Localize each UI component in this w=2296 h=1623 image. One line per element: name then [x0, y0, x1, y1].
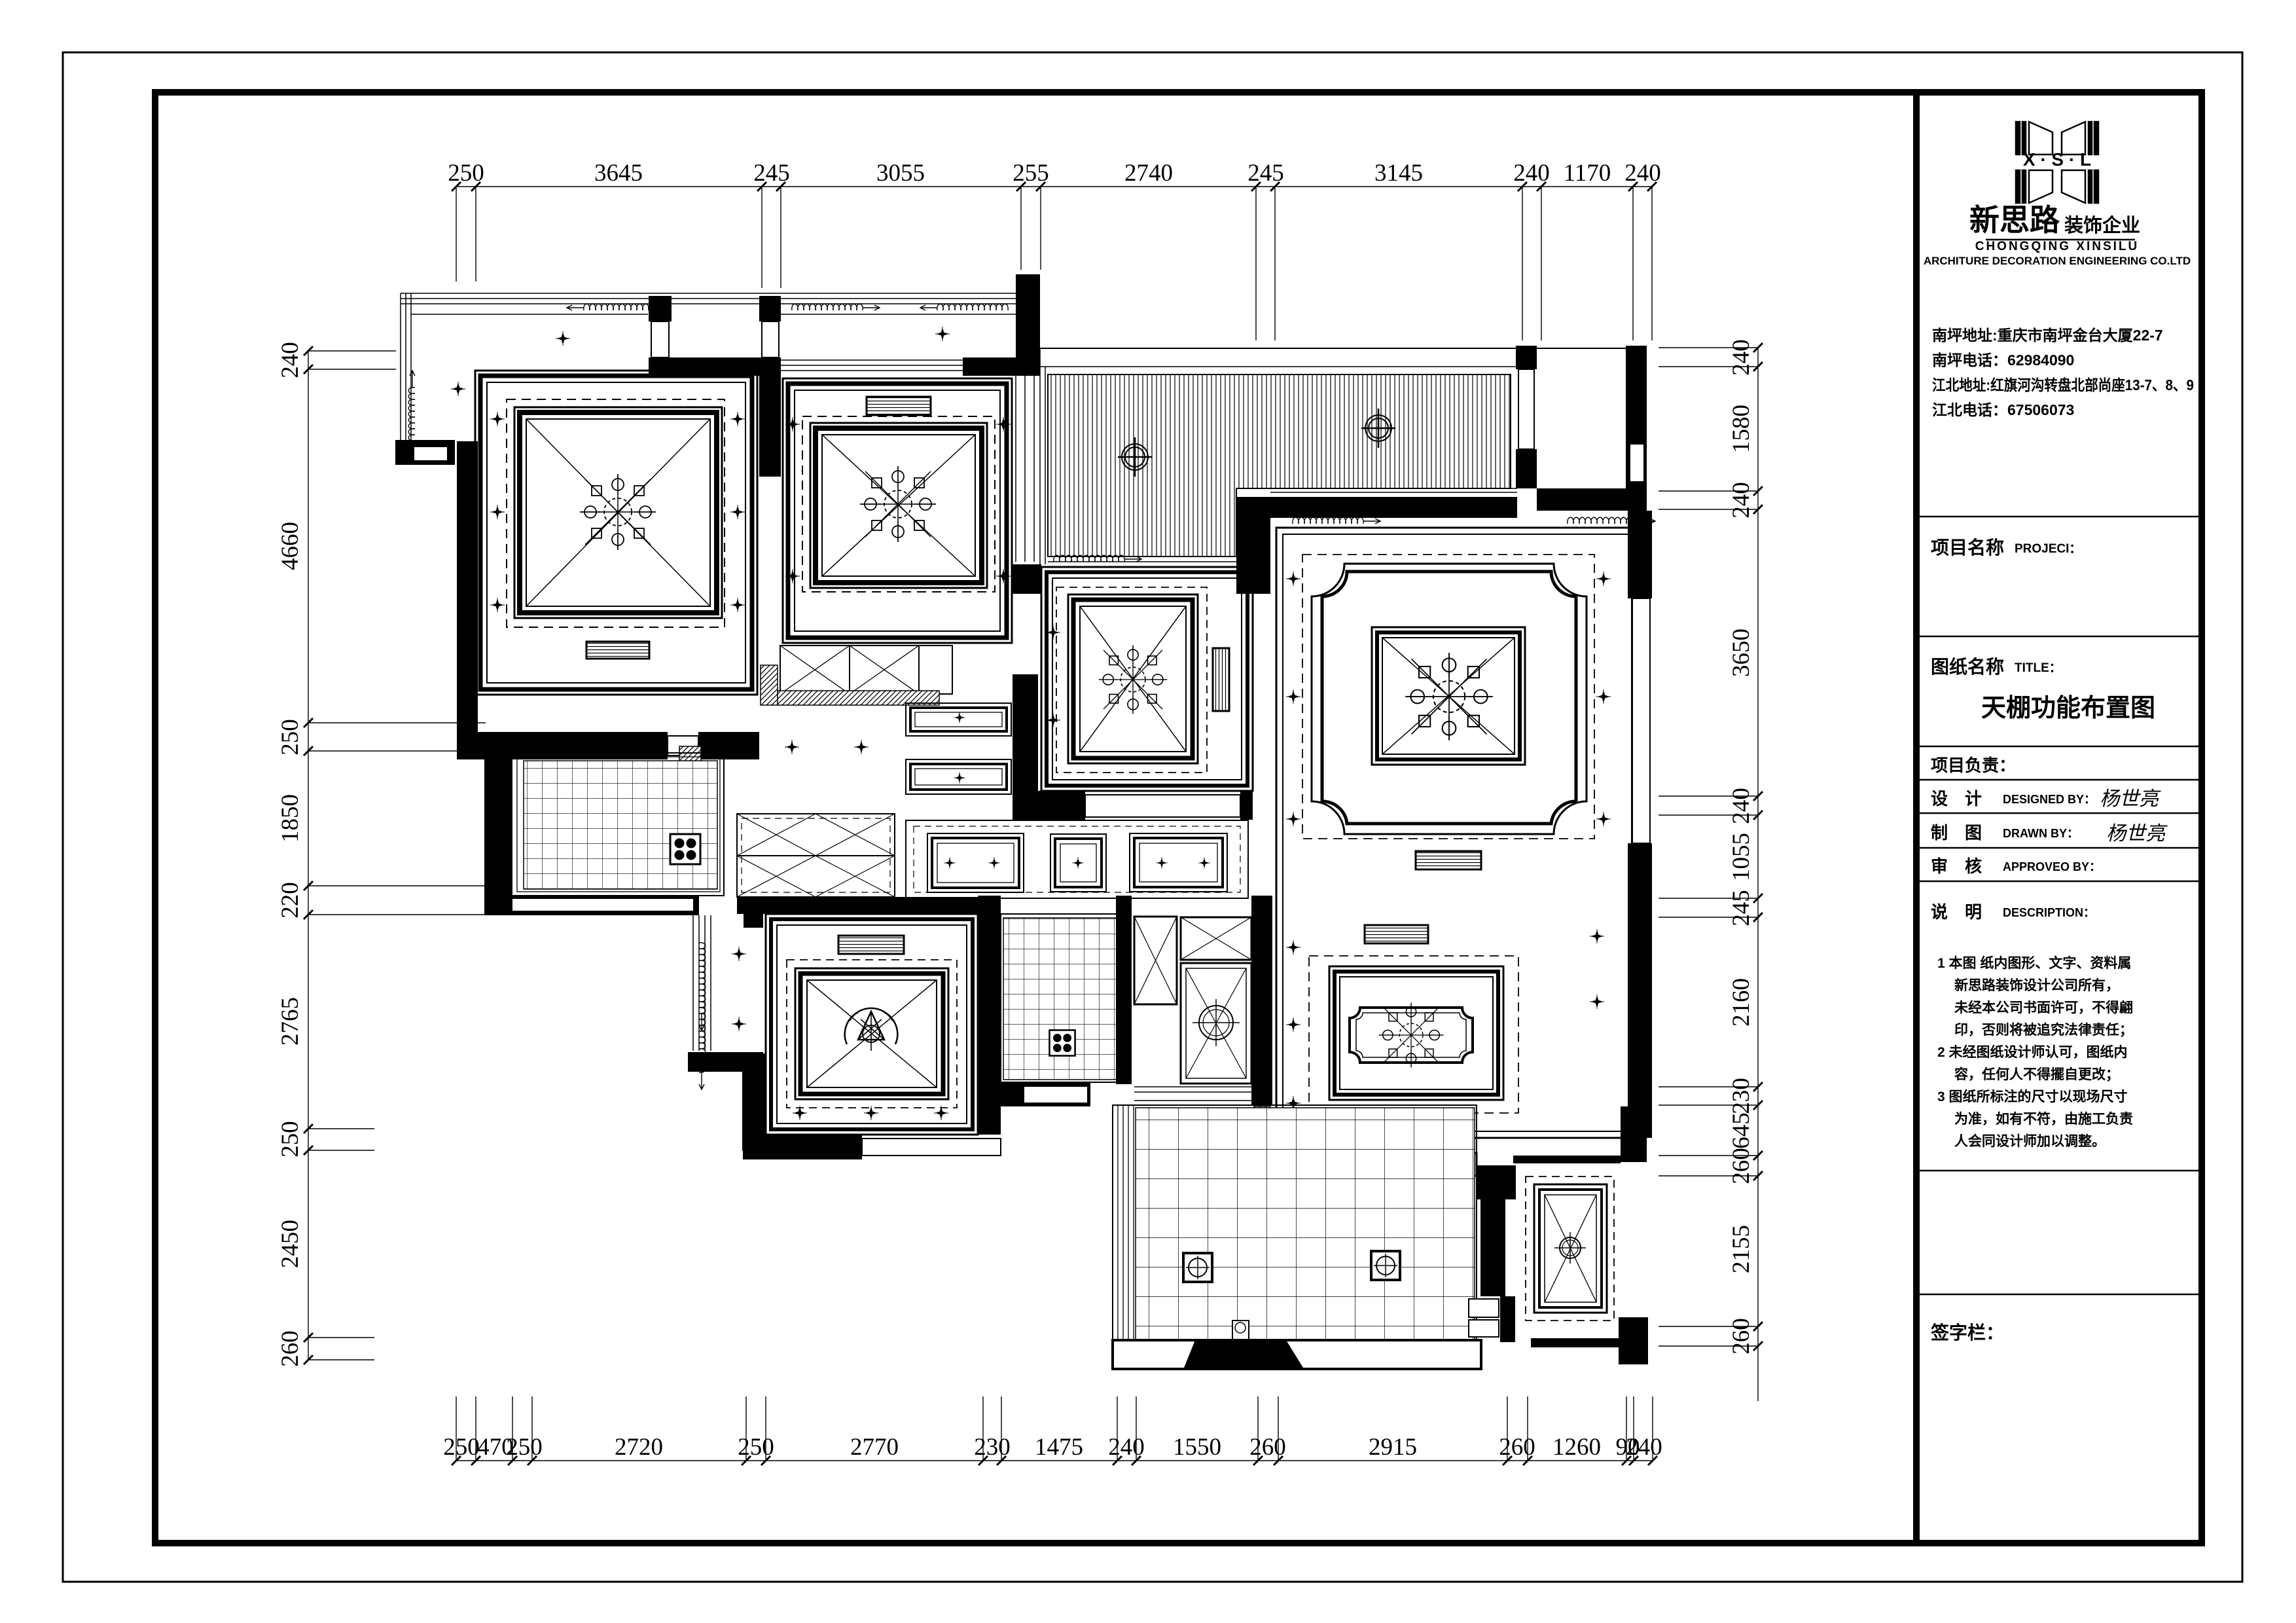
svg-text:1550: 1550 — [1173, 1434, 1221, 1461]
svg-text:1 本图 纸内图形、文字、资料属: 1 本图 纸内图形、文字、资料属 — [1937, 955, 2131, 971]
svg-text:3650: 3650 — [1728, 629, 1755, 677]
svg-text:255: 255 — [1013, 160, 1049, 187]
svg-text:250: 250 — [448, 160, 484, 187]
svg-text:1055: 1055 — [1728, 833, 1755, 881]
svg-text:项目负责：: 项目负责： — [1931, 756, 2016, 775]
svg-text:260: 260 — [1728, 1318, 1755, 1355]
svg-text:印，否则将被追究法律责任；: 印，否则将被追究法律责任； — [1954, 1022, 2133, 1038]
svg-text:260: 260 — [1728, 1148, 1755, 1184]
svg-text:240: 240 — [1624, 160, 1661, 187]
svg-text:240: 240 — [1728, 482, 1755, 519]
svg-text:1580: 1580 — [1728, 405, 1755, 453]
svg-text:2450: 2450 — [277, 1220, 304, 1268]
svg-text:江北电话：67506073: 江北电话：67506073 — [1932, 401, 2074, 418]
svg-text:250: 250 — [277, 1121, 304, 1158]
svg-text:240: 240 — [1513, 160, 1550, 187]
svg-text:新思路: 新思路 — [1969, 203, 2060, 237]
svg-text:杨世亮: 杨世亮 — [2100, 788, 2161, 810]
svg-text:2720: 2720 — [615, 1434, 663, 1461]
svg-text:220: 220 — [277, 882, 304, 919]
svg-text:2155: 2155 — [1728, 1225, 1755, 1273]
svg-text:3145: 3145 — [1374, 160, 1423, 187]
svg-text:图纸名称: 图纸名称 — [1931, 656, 2004, 677]
svg-text:645: 645 — [1728, 1112, 1755, 1149]
svg-text:3645: 3645 — [594, 160, 643, 187]
svg-text:DRAWN BY：: DRAWN BY： — [2003, 827, 2079, 840]
svg-text:容，任何人不得擺自更改；: 容，任何人不得擺自更改； — [1954, 1067, 2119, 1082]
svg-text:项目名称: 项目名称 — [1931, 538, 2004, 558]
svg-text:250: 250 — [443, 1434, 480, 1461]
svg-text:250: 250 — [277, 719, 304, 756]
svg-text:2765: 2765 — [277, 997, 304, 1046]
svg-text:240: 240 — [1728, 339, 1755, 376]
svg-text:APPROVEO BY：: APPROVEO BY： — [2003, 860, 2101, 873]
svg-text:2740: 2740 — [1124, 160, 1173, 187]
svg-text:1850: 1850 — [277, 794, 304, 843]
svg-text:250: 250 — [506, 1434, 543, 1461]
svg-text:新思路装饰设计公司所有，: 新思路装饰设计公司所有， — [1954, 977, 2119, 993]
svg-text:南坪电话：62984090: 南坪电话：62984090 — [1932, 352, 2074, 369]
svg-text:PROJECI：: PROJECI： — [2015, 542, 2081, 556]
svg-text:245: 245 — [1728, 890, 1755, 926]
svg-text:TITLE：: TITLE： — [2015, 661, 2062, 675]
svg-text:260: 260 — [1499, 1434, 1535, 1461]
svg-text:江北地址:红旗河沟转盘北部尚座13-7、8、9: 江北地址:红旗河沟转盘北部尚座13-7、8、9 — [1932, 376, 2194, 393]
svg-text:240: 240 — [277, 342, 304, 378]
svg-text:CHONGQING XINSILU: CHONGQING XINSILU — [1975, 240, 2140, 253]
svg-text:2160: 2160 — [1728, 978, 1755, 1027]
svg-text:240: 240 — [1728, 788, 1755, 824]
svg-text:260: 260 — [277, 1330, 304, 1367]
svg-text:1260: 1260 — [1552, 1434, 1601, 1461]
svg-text:4660: 4660 — [277, 522, 304, 570]
svg-text:人会同设计师加以调整。: 人会同设计师加以调整。 — [1954, 1133, 2106, 1149]
svg-text:1475: 1475 — [1035, 1434, 1083, 1461]
svg-text:250: 250 — [738, 1434, 774, 1461]
svg-text:245: 245 — [1247, 160, 1284, 187]
svg-text:ARCHITURE DECORATION ENGINEERI: ARCHITURE DECORATION ENGINEERING CO.LTD — [1924, 255, 2191, 267]
svg-text:说 明: 说 明 — [1931, 902, 1982, 922]
svg-text:未经本公司书面许可，不得翩: 未经本公司书面许可，不得翩 — [1954, 1000, 2133, 1015]
svg-text:DESIGNED BY：: DESIGNED BY： — [2003, 793, 2096, 806]
svg-text:260: 260 — [1249, 1434, 1286, 1461]
svg-text:为准，如有不符，由施工负责: 为准，如有不符，由施工负责 — [1954, 1111, 2133, 1127]
svg-text:制 图: 制 图 — [1931, 823, 1982, 843]
svg-text:杨世亮: 杨世亮 — [2106, 823, 2168, 845]
svg-text:3055: 3055 — [876, 160, 925, 187]
svg-text:天棚功能布置图: 天棚功能布置图 — [1981, 695, 2155, 722]
svg-text:装饰企业: 装饰企业 — [2064, 214, 2140, 236]
svg-text:230: 230 — [1728, 1078, 1755, 1114]
svg-text:审 核: 审 核 — [1931, 856, 1982, 876]
svg-text:DESCRIPTION：: DESCRIPTION： — [2003, 906, 2095, 919]
svg-text:2 未经图纸设计师认可，图纸内: 2 未经图纸设计师认可，图纸内 — [1937, 1044, 2128, 1060]
svg-text:南坪地址:重庆市南坪金台大厦22-7: 南坪地址:重庆市南坪金台大厦22-7 — [1932, 327, 2163, 344]
svg-text:X · S · L: X · S · L — [2023, 149, 2091, 170]
svg-text:1170: 1170 — [1564, 160, 1611, 187]
svg-text:签字栏：: 签字栏： — [1931, 1322, 2004, 1343]
svg-text:2915: 2915 — [1369, 1434, 1417, 1461]
svg-text:245: 245 — [753, 160, 790, 187]
svg-text:设 计: 设 计 — [1931, 789, 1982, 809]
svg-text:240: 240 — [1108, 1434, 1145, 1461]
svg-text:240: 240 — [1626, 1434, 1662, 1461]
svg-text:230: 230 — [974, 1434, 1011, 1461]
svg-text:3 图纸所标注的尺寸以现场尺寸: 3 图纸所标注的尺寸以现场尺寸 — [1937, 1089, 2128, 1104]
svg-text:2770: 2770 — [850, 1434, 899, 1461]
